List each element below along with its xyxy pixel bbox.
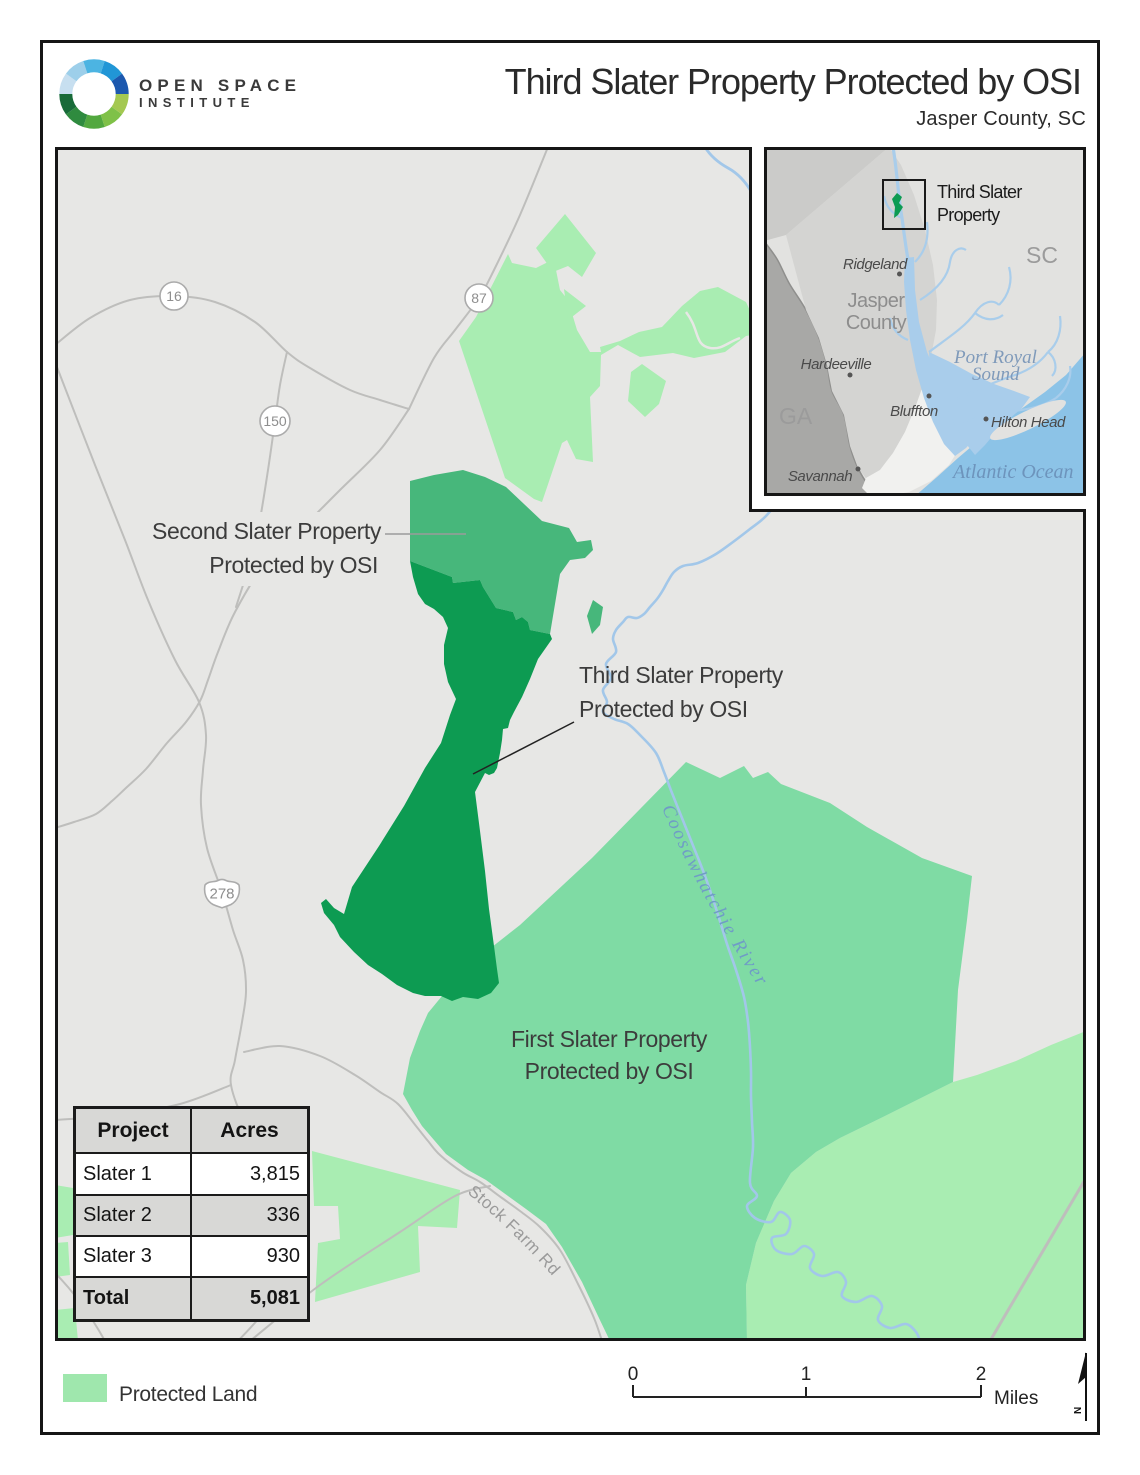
svg-text:1: 1 — [801, 1364, 812, 1385]
svg-text:GA: GA — [779, 403, 813, 429]
svg-text:0: 0 — [628, 1364, 639, 1385]
svg-text:Sound: Sound — [972, 364, 1020, 385]
svg-text:Protected by OSI: Protected by OSI — [579, 696, 748, 722]
svg-text:Protected by OSI: Protected by OSI — [525, 1058, 694, 1084]
svg-text:2: 2 — [976, 1364, 987, 1385]
svg-text:Ridgeland: Ridgeland — [843, 256, 908, 273]
svg-text:Hilton Head: Hilton Head — [991, 414, 1066, 431]
svg-text:Bluffton: Bluffton — [890, 403, 938, 420]
svg-text:87: 87 — [471, 290, 487, 306]
svg-text:278: 278 — [209, 886, 234, 903]
svg-text:150: 150 — [263, 413, 287, 429]
svg-text:First Slater Property: First Slater Property — [511, 1026, 708, 1052]
svg-text:SC: SC — [1026, 242, 1058, 268]
svg-text:Third Slater: Third Slater — [937, 182, 1022, 202]
svg-text:16: 16 — [166, 288, 182, 304]
svg-text:Hardeeville: Hardeeville — [801, 356, 872, 373]
svg-text:Second Slater Property: Second Slater Property — [152, 518, 382, 544]
svg-text:Savannah: Savannah — [788, 468, 852, 485]
svg-text:Jasper: Jasper — [847, 290, 905, 312]
svg-text:County: County — [846, 312, 907, 334]
svg-text:Miles: Miles — [994, 1388, 1038, 1409]
svg-text:Third Slater Property: Third Slater Property — [579, 662, 784, 688]
svg-text:Atlantic Ocean: Atlantic Ocean — [951, 461, 1074, 483]
svg-text:Property: Property — [937, 205, 1000, 225]
svg-text:N: N — [1073, 1407, 1084, 1414]
svg-text:Protected by OSI: Protected by OSI — [209, 552, 378, 578]
